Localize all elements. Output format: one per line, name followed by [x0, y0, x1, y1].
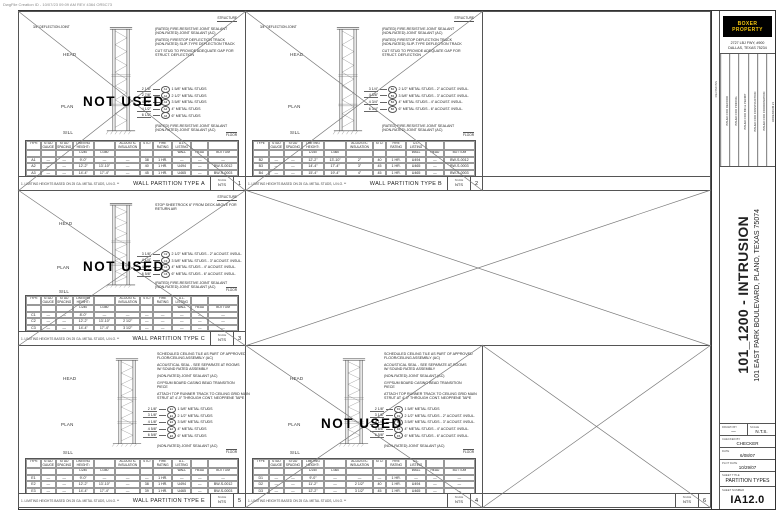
callout-notes: SCHEDULED CEILING TILE AS PART OF APPROV… [384, 352, 484, 403]
sheet-number: IA12.0 [722, 492, 773, 508]
stud-tag-icon: E6 [167, 432, 176, 439]
callout-notes: SCHEDULED CEILING TILE AS PART OF APPROV… [157, 352, 257, 403]
stud-callout: 4 3/8"B33 5/8" METAL STUDS - 3" ACOUST. … [364, 93, 469, 100]
stud-dimension: 6 5/8" [143, 433, 157, 438]
table-header-cell [191, 296, 208, 305]
sill-callout: (RATED) FIRE-RESISTIVE JOINT SEALANT (NO… [382, 124, 478, 135]
leader-line [159, 422, 166, 423]
table-header-cell [426, 459, 444, 468]
callout-note: (RATED) FIRE-RESISTIVE JOINT SEALANT (NO… [155, 27, 255, 35]
scale-box: SCALENTS [210, 494, 233, 507]
title-block: REVISIONS BOXER PROPERTY 2727 LBJ FWY, #… [711, 10, 776, 510]
detail-number: 3 [233, 332, 245, 345]
detail-title-bar: 1. LIMITING HEIGHTS BASED ON 25 GA. META… [19, 493, 245, 507]
stud-callout: 2 1/8"E11 5/8" METAL STUDS [143, 406, 213, 413]
callout-note: GYPSUM BOARD CASING BEAD TRANSITION PIEC… [157, 381, 257, 389]
revisions-table: ISSUED FOR RECORDISSUED FOR PRICINGISSUE… [720, 54, 775, 167]
table-header-cell: TYPE [26, 141, 41, 150]
table-header-cell: U.L. LISTING [172, 141, 191, 150]
sill-label: SILL [290, 450, 300, 455]
structure-label: STRUCTURE [217, 195, 237, 201]
head-label: HEAD [290, 376, 303, 381]
stud-callout: 6 1/2"A66" METAL STUDS [137, 112, 207, 119]
table-header-cell: FIRE RATING [153, 459, 172, 468]
callout-note: STOP SHEETROCK 6" FROM DECK ABOVE FOR RE… [155, 203, 255, 211]
table-header-cell: STUD GAUGE [269, 141, 285, 150]
sill-label: SILL [59, 289, 69, 294]
stud-tag-icon: B6 [388, 106, 397, 113]
leader-line [386, 435, 393, 436]
sheet-number-field: SHEET NUMBERIA12.0 [720, 487, 775, 509]
scale-box: SCALENTS [210, 332, 233, 345]
revision-entry: ISSUED FOR COORDINATION [757, 54, 766, 166]
stud-dimension: 2 1/8" [370, 407, 384, 412]
detail-title-bar: 1. LIMITING HEIGHTS BASED ON 25 GA. META… [246, 176, 482, 190]
callout-note: ATTACH TOP RUNNER TRACK TO CEILING GRID … [384, 392, 484, 400]
stud-description: 6" METAL STUDS [178, 434, 207, 438]
sill-callout: (RATED) FIRE-RESISTIVE JOINT SEALANT (NO… [155, 124, 251, 135]
table-header-cell [444, 141, 475, 150]
scale-box: SCALENTS [675, 494, 698, 507]
leader-line [380, 95, 387, 96]
stud-description: 6" METAL STUDS - 6" ACOUST. INSUL. [399, 107, 463, 111]
callout-note: (NON-RATED) JOINT SEALANT (AC) [157, 374, 257, 378]
stud-dimension: 2 1/8" [137, 87, 151, 92]
stud-description: 2 1/2" METAL STUDS - 2" ACOUST. INSUL. [399, 87, 469, 91]
detail-number: 5 [233, 494, 245, 507]
head-label: HEAD [63, 52, 76, 57]
project-address: 101 EAST PARK BOULEVARD, PLANO, TEXAS 75… [754, 209, 761, 382]
table-header-cell [94, 459, 115, 468]
not-used-label: NOT USED [321, 416, 403, 431]
table-header-cell [191, 459, 208, 468]
detail-title: WALL PARTITION TYPE B [365, 181, 447, 187]
leader-line [386, 409, 393, 410]
table-header-cell: TYPE [253, 459, 269, 468]
detail-title-bar: 1. LIMITING HEIGHTS BASED ON 25 GA. META… [246, 493, 482, 507]
project-title: 101_1200 - INTRUSION [735, 216, 751, 374]
callout-notes: STOP SHEETROCK 6" FROM DECK ABOVE FOR RE… [155, 203, 255, 214]
table-header-cell: LIMITING HEIGHT¹ [73, 459, 94, 468]
stud-description: 6" METAL STUDS [172, 114, 201, 118]
detail-number: 1 [233, 177, 245, 190]
stud-callout: 6 3/4"B66" METAL STUDS - 6" ACOUST. INSU… [364, 106, 469, 113]
drawn-by-field: DRAWN BY— [720, 424, 747, 435]
detail-number: 2 [470, 177, 482, 190]
revisions-strip: REVISIONS [712, 11, 720, 509]
callout-note: SCHEDULED CEILING TILE AS PART OF APPROV… [157, 352, 257, 360]
leader-line [153, 89, 160, 90]
leader-line [153, 115, 160, 116]
table-header-cell: LIMITING HEIGHT¹ [302, 459, 324, 468]
table-header-cell [324, 459, 346, 468]
deflection-joint-label: 3/4" DEFLECTION JOINT [33, 26, 89, 30]
revision-entry: ISSUED FOR PRICING [729, 54, 738, 166]
stud-callout: 6 5/8"D66" METAL STUDS - 6" ACOUST. INSU… [370, 432, 475, 439]
structure-label: STRUCTURE [454, 16, 474, 22]
table-header-cell: STUD GAUGE [269, 459, 285, 468]
table-header-cell [444, 459, 475, 468]
detail-title-bar: 1. LIMITING HEIGHTS BASED ON 25 GA. META… [19, 176, 245, 190]
stud-description: 3 5/8" METAL STUDS [178, 420, 213, 424]
stud-description: 6" METAL STUDS - 6" ACOUST. INSUL. [405, 434, 469, 438]
table-header-cell: STUD GAUGE [41, 296, 56, 305]
table-header-cell: FIRE RATING [153, 296, 172, 305]
stud-dimension: 4 3/4" [364, 100, 378, 105]
stud-dimension: 3 1/8" [137, 252, 151, 257]
leader-line [159, 415, 166, 416]
panel-wall-type-a: 3/4" DEFLECTION JOINT STRUCTURE FLOOR HE… [18, 11, 246, 191]
stud-description: 1 5/8" METAL STUDS [172, 87, 207, 91]
table-footnote: 1. LIMITING HEIGHTS BASED ON 25 GA. META… [246, 499, 437, 503]
stud-description: 2 1/2" METAL STUDS [172, 94, 207, 98]
leader-line [159, 435, 166, 436]
leader-line [159, 409, 166, 410]
stud-callout: 4 3/4"B44" METAL STUDS - 4" ACOUST. INSU… [364, 99, 469, 106]
scale-box: SCALENTS [210, 177, 233, 190]
table-header-cell: STUD SPACING [56, 459, 73, 468]
stud-dimension: 4 3/8" [364, 93, 378, 98]
sill-callout: (NON-RATED) JOINT SEALANT (AC) [384, 444, 480, 451]
stud-description: 4" METAL STUDS [172, 107, 201, 111]
panel-wall-type-c: STRUCTURE FLOOR HEAD PLAN SILL STOP SHEE… [18, 190, 246, 346]
stud-description: 4" METAL STUDS - 4" ACOUST. INSUL. [399, 100, 463, 104]
stud-tag-icon: B4 [388, 99, 397, 106]
stud-description: 6" METAL STUDS - 6" ACOUST. INSUL. [172, 272, 236, 276]
stud-callout: 3 1/8"E22 1/2" METAL STUDS [143, 413, 213, 420]
revision-entry: ADDENDUM #1 [766, 54, 775, 166]
detail-title-bar: 1. LIMITING HEIGHTS BASED ON 25 GA. META… [19, 331, 245, 345]
head-label: HEAD [59, 221, 72, 226]
table-header-cell: TYPE [26, 459, 41, 468]
table-header-cell: U.L. LISTING [406, 459, 426, 468]
table-header-cell: FIRE RATING [386, 141, 406, 150]
stud-description: 2 1/2" METAL STUDS - 2" ACOUST. INSUL. [405, 414, 475, 418]
plan-label: PLAN [288, 104, 301, 109]
callout-note: (NON-RATED) JOINT SEALANT (AC) [384, 374, 484, 378]
stud-description: 3 5/8" METAL STUDS - 3" ACOUST. INSUL. [405, 420, 475, 424]
table-header-cell: STC² [140, 141, 153, 150]
table-header-cell: TYPE [26, 296, 41, 305]
table-header-cell [208, 141, 238, 150]
callout-note: (RATED) FIRESTOP DEFLECTION TRACK (NON-R… [382, 38, 482, 46]
panel-wall-type-d: FLOOR HEAD PLAN SILL SCHEDULED CEILING T… [245, 345, 483, 508]
stud-description: 3 5/8" METAL STUDS [172, 100, 207, 104]
panel-empty-middle [245, 190, 711, 346]
wall-section-drawing [322, 24, 374, 136]
detail-title: WALL PARTITION TYPE C [127, 336, 210, 342]
table-header-cell: TYPE [253, 141, 269, 150]
table-header-cell: ACOUSTIC INSULATION [115, 459, 140, 468]
stud-dimension: 4 1/8" [143, 420, 157, 425]
revisions-label: REVISIONS [714, 81, 718, 97]
checked-by-field: CHECKED BYCHECKER [720, 436, 775, 447]
callout-notes: (RATED) FIRE-RESISTIVE JOINT SEALANT (NO… [155, 27, 255, 60]
sill-callout: (NON-RATED) JOINT SEALANT (AC) [157, 444, 253, 451]
head-label: HEAD [63, 376, 76, 381]
table-header-cell [94, 141, 115, 150]
table-header-cell: STUD SPACING [56, 296, 73, 305]
table-header-cell: STUD SPACING [56, 141, 73, 150]
leader-line [380, 102, 387, 103]
table-header-cell: FIRE RATING [386, 459, 406, 468]
table-header-cell: ACOUSTIC INSULATION [115, 141, 140, 150]
table-header-cell [208, 459, 238, 468]
leader-line [380, 109, 387, 110]
callout-note: CUT STUD TO PROVIDE ADEQUATE GAP FOR STR… [155, 49, 255, 57]
sill-label: SILL [290, 130, 300, 135]
table-header-cell: STC² [373, 141, 386, 150]
drawing-sheet: DwgFile Creation ID - 10/07/23 09:09 AM … [0, 0, 780, 521]
stud-callout: 3 1/8"C22 1/2" METAL STUDS - 2" ACOUST. … [137, 251, 242, 258]
stud-dimension: 6 5/8" [370, 433, 384, 438]
company-address: 2727 LBJ FWY, #900 DALLAS, TEXAS 75234 [720, 39, 775, 54]
stud-callout: 4 5/8"E44" METAL STUDS [143, 426, 213, 433]
boxer-property-logo: BOXER PROPERTY [723, 16, 772, 37]
stud-description: 1 5/8" METAL STUDS [178, 407, 213, 411]
table-header-cell: STC² [373, 459, 386, 468]
stud-callouts: 2 1/8"E11 5/8" METAL STUDS 3 1/8"E22 1/2… [143, 406, 213, 439]
callout-note: GYPSUM BOARD CASING BEAD TRANSITION PIEC… [384, 381, 484, 389]
sill-callout: (RATED) FIRE-RESISTIVE JOINT SEALANT (NO… [155, 281, 251, 292]
structure-label: STRUCTURE [217, 16, 237, 22]
stud-description: 2 1/2" METAL STUDS - 2" ACOUST. INSUL. [172, 252, 242, 256]
plan-label: PLAN [61, 422, 74, 427]
panel-wall-type-e: FLOOR HEAD PLAN SILL SCHEDULED CEILING T… [18, 345, 246, 508]
panel-wall-type-b: 3/4" DEFLECTION JOINT STRUCTURE FLOOR HE… [245, 11, 483, 191]
callout-note: ATTACH TOP RUNNER TRACK TO CEILING GRID … [157, 392, 257, 400]
table-header-cell: LIMITING HEIGHT¹ [73, 296, 94, 305]
sheet-title-field: SHEET TITLEPARTITION TYPES [720, 472, 775, 486]
scale-box: SCALENTS [447, 494, 470, 507]
revision-entry: ISSUED FOR CONSTRUCTION [748, 54, 757, 166]
table-header-cell: LIMITING HEIGHT¹ [73, 141, 94, 150]
wall-section-drawing [95, 24, 147, 136]
stud-callouts: 3 1/4"B22 1/2" METAL STUDS - 2" ACOUST. … [364, 86, 469, 112]
table-header-cell: U.L. LISTING [406, 141, 426, 150]
table-header-cell: ACOUSTIC INSULATION [115, 296, 140, 305]
leader-line [153, 254, 160, 255]
stud-callout: 3 1/4"B22 1/2" METAL STUDS - 2" ACOUST. … [364, 86, 469, 93]
table-header-cell: FIRE RATING [153, 141, 172, 150]
detail-number: 4 [470, 494, 482, 507]
callout-note: SCHEDULED CEILING TILE AS PART OF APPROV… [384, 352, 484, 360]
stud-description: 4" METAL STUDS - 4" ACOUST. INSUL. [405, 427, 469, 431]
revision-entry: ISSUED FOR RECORD [720, 54, 729, 166]
plan-label: PLAN [288, 422, 301, 427]
table-header-cell: STUD SPACING [284, 141, 302, 150]
head-label: HEAD [290, 52, 303, 57]
revision-entry: ISSUED FOR BID & PERMIT [738, 54, 747, 166]
callout-note: (RATED) FIRESTOP DEFLECTION TRACK (NON-R… [155, 38, 255, 46]
stud-description: 1 5/8" METAL STUDS [405, 407, 440, 411]
table-header-cell: STC² [140, 459, 153, 468]
table-header-cell: ACOUSTIC INSULATION [346, 459, 373, 468]
stud-dimension: 6 3/4" [364, 107, 378, 112]
table-header-cell [94, 296, 115, 305]
date-field: DATE6/08/07 [720, 448, 775, 459]
not-used-label: NOT USED [83, 94, 165, 109]
plan-label: PLAN [57, 265, 70, 270]
stud-description: 3 5/8" METAL STUDS - 3" ACOUST. INSUL. [172, 259, 242, 263]
table-header-cell: STUD SPACING [284, 459, 302, 468]
table-header-cell: LIMITING HEIGHT¹ [302, 141, 324, 150]
stud-callout: 4 1/8"E33 5/8" METAL STUDS [143, 419, 213, 426]
stud-description: 4" METAL STUDS - 4" ACOUST. INSUL. [172, 265, 236, 269]
panel-empty-bottom-right: SCALENTS 6 [482, 345, 711, 508]
title-block-fields: DRAWN BY— SCALEN.T.S. CHECKED BYCHECKER … [720, 424, 775, 509]
detail-title: WALL PARTITION TYPE A [128, 181, 210, 187]
callout-note: CUT STUD TO PROVIDE ADEQUATE GAP FOR STR… [382, 49, 482, 57]
plan-label: PLAN [61, 104, 74, 109]
stud-dimension: 3 1/4" [364, 87, 378, 92]
table-header-cell: ACOUSTIC INSULATION [346, 141, 373, 150]
table-header-cell [426, 141, 444, 150]
callout-note: (RATED) FIRE-RESISTIVE JOINT SEALANT (NO… [382, 27, 482, 35]
stud-description: 3 5/8" METAL STUDS - 3" ACOUST. INSUL. [399, 94, 469, 98]
stud-description: 2 1/2" METAL STUDS [178, 414, 213, 418]
stud-dimension: 3 1/8" [143, 413, 157, 418]
sheet-title: PARTITION TYPES [722, 477, 773, 485]
leader-line [159, 429, 166, 430]
project-identification: 101_1200 - INTRUSION 101 EAST PARK BOULE… [720, 167, 775, 424]
deflection-joint-label: 3/4" DEFLECTION JOINT [260, 26, 316, 30]
plot-date-field: PLOT DATE10/29/07 [720, 460, 775, 471]
panel-empty-top-right [482, 11, 711, 191]
table-footnote: 1. LIMITING HEIGHTS BASED ON 25 GA. META… [19, 182, 128, 186]
stud-tag-icon: E3 [167, 419, 176, 426]
callout-note: ACOUSTICAL SEAL - SEE SEPARATE AT ROOMS … [157, 363, 257, 371]
table-footnote: 1. LIMITING HEIGHTS BASED ON 25 GA. META… [19, 499, 128, 503]
stud-dimension: 4 5/8" [143, 427, 157, 432]
empty-title-bar [483, 176, 710, 190]
stud-tag-icon: A6 [161, 112, 170, 119]
scale-box: SCALENTS [447, 177, 470, 190]
stud-dimension: 2 1/8" [143, 407, 157, 412]
table-header-cell: U.L. LISTING [172, 296, 191, 305]
sill-label: SILL [63, 450, 73, 455]
stud-description: 4" METAL STUDS [178, 427, 207, 431]
stud-callout: 2 1/8"A11 5/8" METAL STUDS [137, 86, 207, 93]
table-footnote: 1. LIMITING HEIGHTS BASED ON 25 GA. META… [246, 182, 365, 186]
plot-stamp: DwgFile Creation ID - 10/07/23 09:09 AM … [3, 2, 112, 7]
table-header-cell [324, 141, 346, 150]
stud-callout: 6 5/8"E66" METAL STUDS [143, 432, 213, 439]
sill-label: SILL [63, 130, 73, 135]
table-header-cell [191, 141, 208, 150]
table-header-cell: STC² [140, 296, 153, 305]
table-header-cell: STUD GAUGE [41, 141, 56, 150]
leader-line [380, 89, 387, 90]
callout-notes: (RATED) FIRE-RESISTIVE JOINT SEALANT (NO… [382, 27, 482, 60]
stud-callout: 2 1/8"D11 5/8" METAL STUDS [370, 406, 475, 413]
table-header-cell: STUD GAUGE [41, 459, 56, 468]
scale-field: SCALEN.T.S. [747, 424, 775, 435]
table-header-cell [208, 296, 238, 305]
detail-title-bar: SCALENTS 6 [483, 493, 710, 507]
stud-tag-icon: D6 [394, 432, 403, 439]
not-used-label: NOT USED [83, 259, 165, 274]
detail-number: 6 [698, 494, 710, 507]
detail-title: WALL PARTITION TYPE E [128, 498, 210, 504]
callout-note: ACOUSTICAL SEAL - SEE SEPARATE AT ROOMS … [384, 363, 484, 371]
table-header-cell: U.L. LISTING [172, 459, 191, 468]
table-footnote: 1. LIMITING HEIGHTS BASED ON 25 GA. META… [19, 337, 127, 341]
stud-dimension: 6 1/2" [137, 113, 151, 118]
